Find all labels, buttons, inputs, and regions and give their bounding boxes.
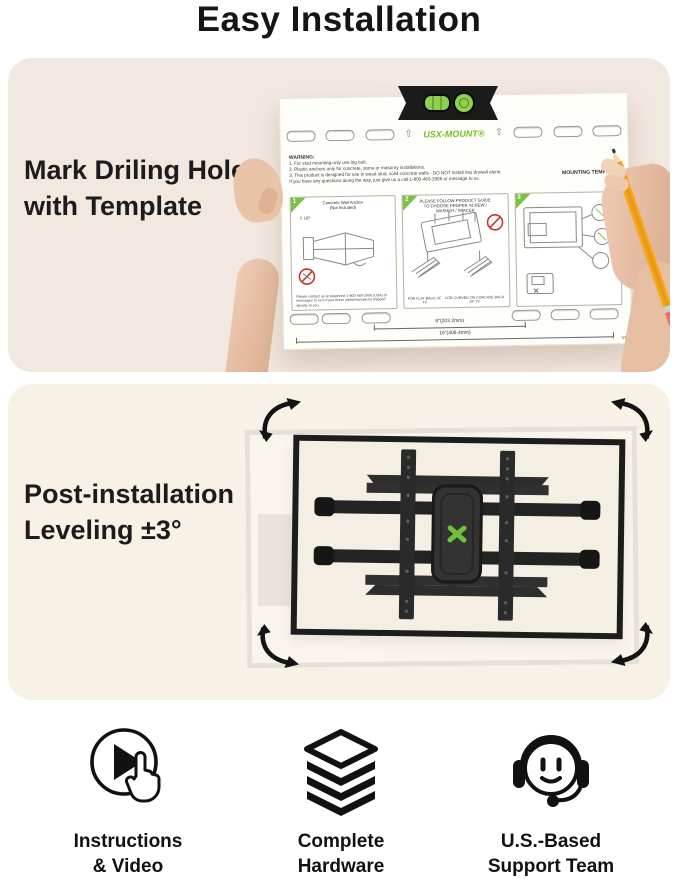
- up-arrow-icon: ⇧: [405, 129, 414, 140]
- dimension-16in: 16"(406.4mm): [296, 332, 614, 343]
- step2-caption-curved: FOR CURVED OR CONCAVE BACK OF TV: [442, 295, 507, 304]
- feature-label-line2: Hardware: [256, 854, 426, 879]
- step-number: 2: [405, 196, 409, 203]
- brand-logo: USX-MOUNT®: [423, 128, 484, 139]
- mount-hole-slot: [553, 126, 582, 138]
- rotate-arrow-icon: [256, 624, 300, 668]
- panel2-heading-line2: Leveling ±3°: [24, 512, 234, 548]
- panel1-heading: Mark Driling Holes with Template: [24, 152, 261, 224]
- wall-mount-illustration: [313, 448, 601, 622]
- panel2-heading: Post-installation Leveling ±3°: [24, 476, 234, 548]
- feature-label-line1: Complete: [256, 829, 426, 854]
- left-forearm-photo: [217, 256, 282, 372]
- feature-label-line2: & Video: [43, 854, 213, 879]
- template-warning-block: WARNING: 1. For stud mounting only use l…: [289, 151, 529, 185]
- step1-line-art: [295, 222, 392, 274]
- dimension-16in-label: 16"(406.4mm): [296, 327, 614, 339]
- template-step-1: 1 Concrete Wall Anchor (Not Included) ⇧ …: [290, 195, 398, 311]
- step1-title-line2: (Not Included): [305, 204, 381, 210]
- panel1-heading-line1: Mark Driling Holes: [24, 152, 261, 188]
- up-marker: ⇧ UP: [299, 216, 310, 222]
- play-video-icon: [78, 724, 178, 816]
- template-top-holes: ⇧ USX-MOUNT® ⇧: [286, 125, 621, 142]
- panel1-heading-line2: with Template: [24, 188, 261, 224]
- mount-hole-slot: [286, 130, 315, 142]
- mounting-template-sheet: ⇧ USX-MOUNT® ⇧ WARNING: 1. For stud moun…: [279, 92, 632, 350]
- step1-note: Please contact us at telephone 1-800-460…: [296, 293, 393, 308]
- feature-label-line1: Instructions: [43, 829, 213, 854]
- svg-text:✕: ✕: [532, 287, 539, 296]
- bubble-level: [396, 84, 500, 122]
- mount-hole-slot: [322, 312, 351, 324]
- panel2-heading-line1: Post-installation: [24, 476, 234, 512]
- step2-caption-flat: FOR FLAT BACK OF TV: [407, 296, 443, 305]
- rotate-arrow-icon: [610, 398, 654, 442]
- mount-hole-slot: [590, 308, 619, 320]
- step2-line-art: [405, 210, 506, 284]
- template-step-2: 2 PLEASE FOLLOW PRODUCT GUIDE TO CHOOSE …: [402, 193, 510, 309]
- prohibition-icon: [298, 267, 316, 285]
- feature-support-team: U.S.-Based Support Team: [466, 724, 636, 879]
- mark-drilling-holes-panel: Mark Driling Holes with Template ⇧ USX-M…: [8, 58, 670, 372]
- page-title: Easy Installation: [0, 0, 678, 40]
- mount-hole-slot: [592, 125, 621, 137]
- mount-hole-slot: [290, 313, 319, 325]
- hardware-stack-icon: [295, 724, 387, 816]
- mount-hole-slot: [365, 129, 394, 141]
- leveling-panel: Post-installation Leveling ±3°: [8, 384, 670, 700]
- feature-instructions-video: Instructions & Video: [43, 724, 213, 879]
- headset-support-icon: [503, 724, 599, 816]
- template-steps: 1 Concrete Wall Anchor (Not Included) ⇧ …: [290, 191, 623, 311]
- rotate-arrow-icon: [610, 622, 654, 666]
- feature-label-line1: U.S.-Based: [466, 829, 636, 854]
- rotate-arrow-icon: [258, 398, 302, 442]
- product-infographic: Easy Installation Mark Driling Holes wit…: [0, 0, 678, 879]
- up-arrow-icon: ⇧: [495, 127, 504, 138]
- mount-hole-slot: [514, 126, 543, 138]
- mount-hole-slot: [326, 130, 355, 142]
- mount-hole-slot: [551, 308, 580, 320]
- feature-label-line2: Support Team: [466, 854, 636, 879]
- step-number: 1: [293, 198, 297, 205]
- feature-complete-hardware: Complete Hardware: [256, 724, 426, 879]
- dimension-8in-label: 8"(203.2mm): [374, 317, 526, 326]
